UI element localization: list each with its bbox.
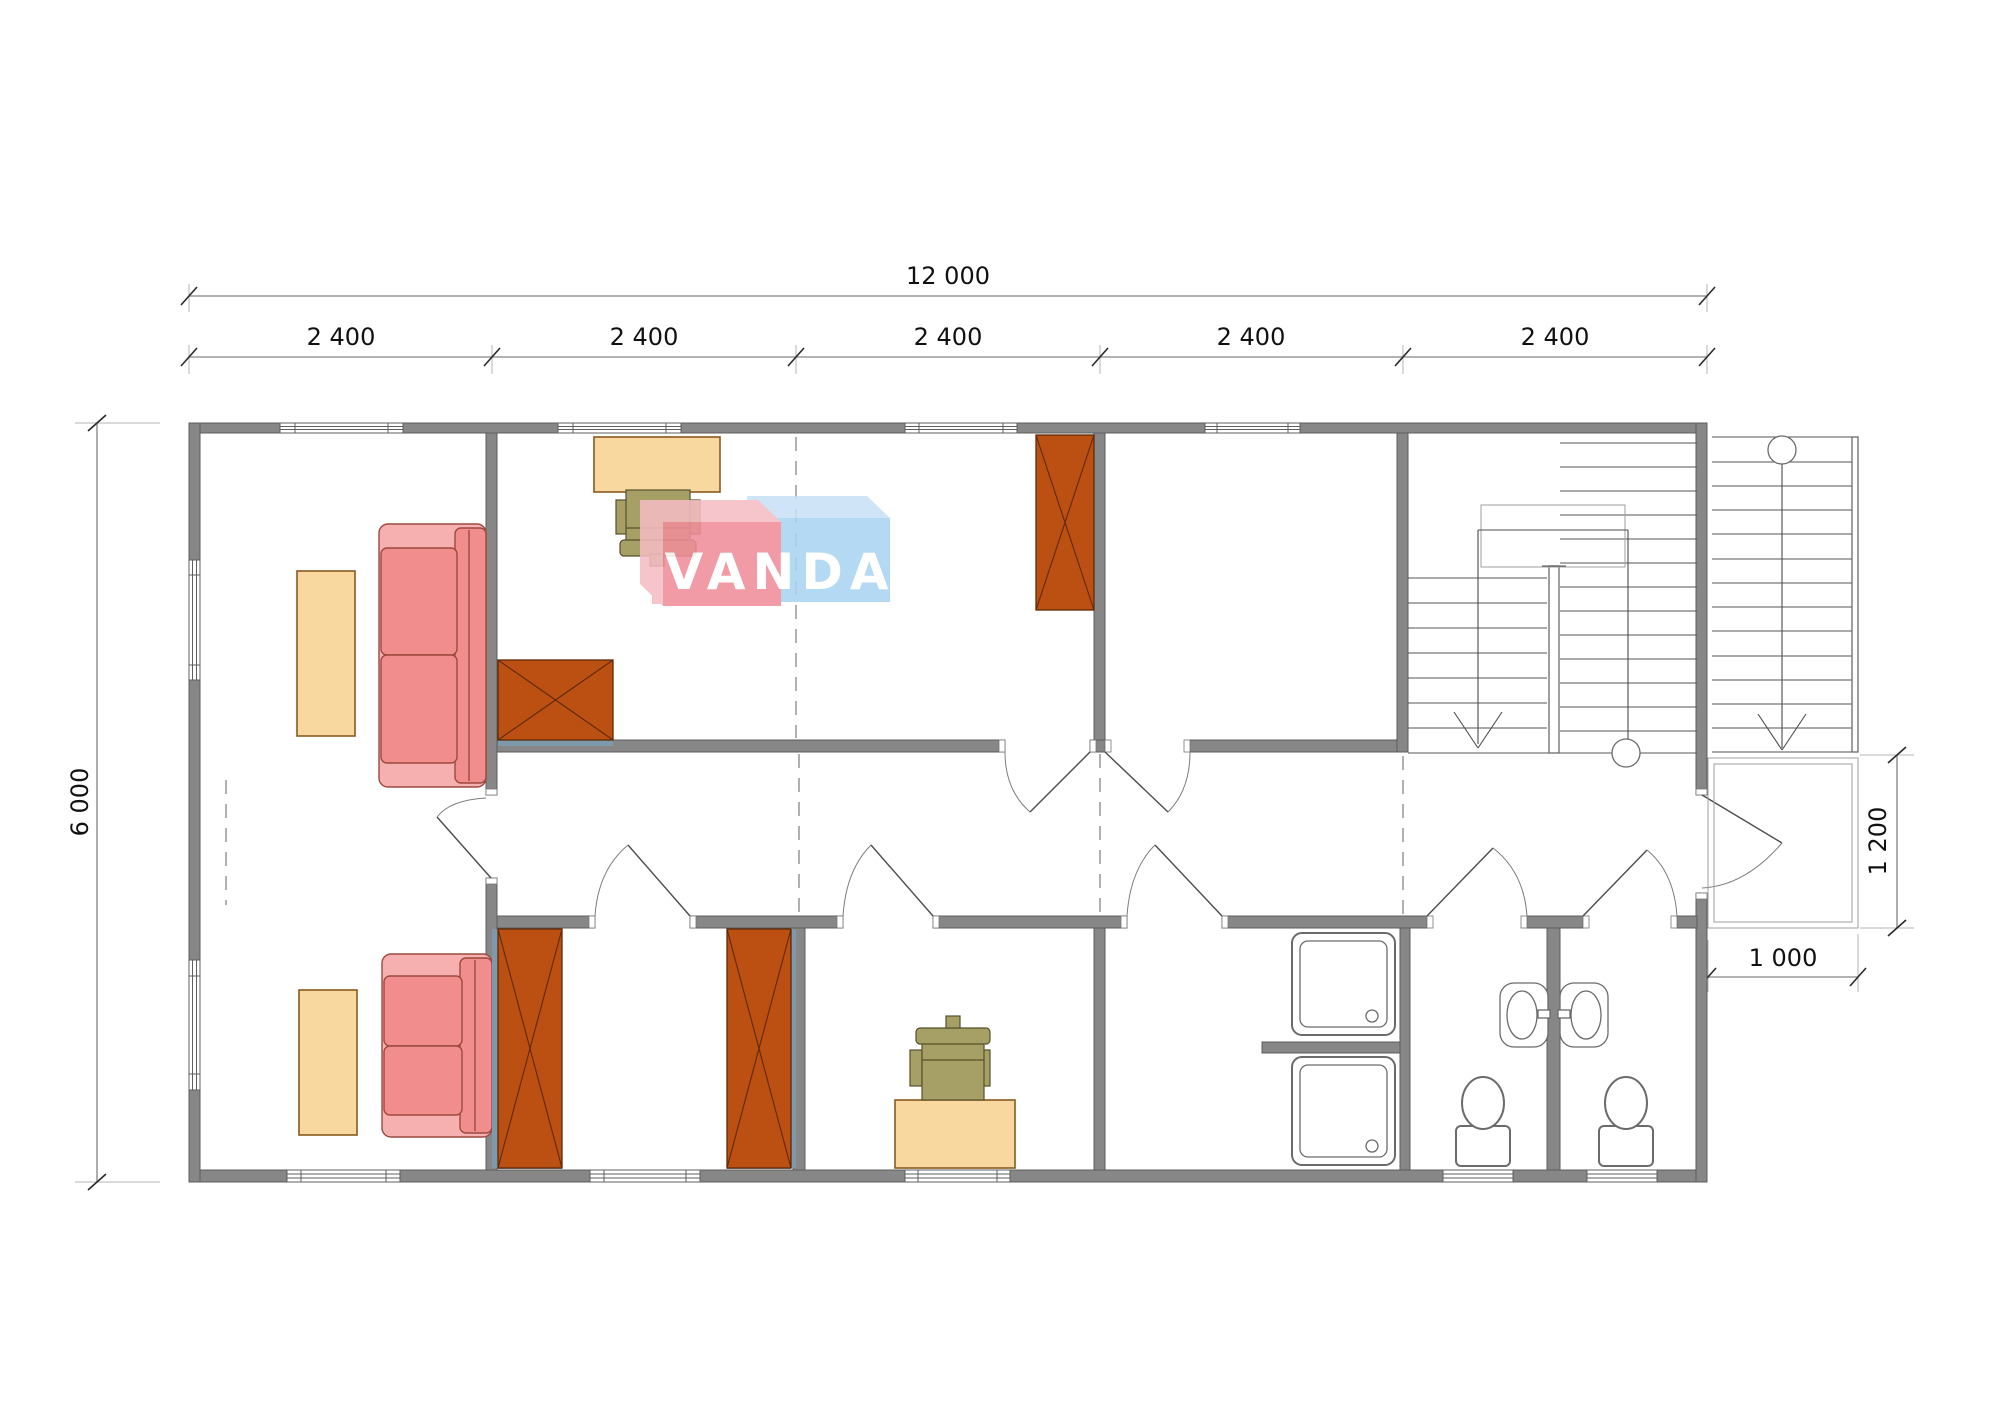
wall-corridor-bottom-f [1677,916,1697,928]
door-swing-icon [595,845,690,916]
dim-label-bay-5: 2 400 [1521,323,1590,351]
wall-shower-stub [1262,1042,1400,1053]
wardrobe-icon [727,929,796,1169]
sink-icon [1500,983,1550,1047]
dim-label-bay-1: 2 400 [307,323,376,351]
door-jamb-caps [486,740,1707,928]
external-stair-rail [1852,437,1858,752]
stair-landing-outline [1481,505,1625,567]
window-icon [558,423,681,433]
wall-corridor-bottom-a [497,916,595,928]
wall-corridor-bottom-b [690,916,843,928]
wall-stairroom [1397,433,1408,752]
wardrobe-icon [492,929,562,1169]
window-icon [280,423,403,433]
sofa-icon [379,524,486,787]
toilet-icon [1456,1077,1510,1166]
dim-label-total-depth: 6 000 [66,768,94,837]
wall-livingroom-upper [486,433,497,795]
porch-platform [1708,758,1858,928]
window-icon [189,560,200,680]
window-icon [1205,423,1300,433]
dim-label-bay-2: 2 400 [610,323,679,351]
dimension-bays: 2 400 2 400 2 400 2 400 2 400 [181,323,1715,374]
wardrobe-icon [498,660,613,746]
door-swing-icon [437,798,491,878]
drain-icon [1366,1140,1378,1152]
internal-staircase [1408,443,1697,767]
faucet-icon [1538,1010,1550,1018]
wall-corridor-bottom-c [933,916,1127,928]
wall-right-lower [1696,893,1707,1182]
desk-icon [895,1100,1015,1168]
door-swing-icon [1005,752,1090,812]
dimension-porch-front: 1 000 [1700,934,1866,992]
wall-wc-divider [1547,928,1560,1170]
faucet-icon [1558,1010,1570,1018]
floor-level-circle-icon [1612,739,1640,767]
wall-corridor-bottom-d [1222,916,1427,928]
coffee-table-icon [297,571,355,736]
dimension-total-width: 12 000 [181,262,1715,312]
dim-label-porch-side: 1 200 [1864,807,1892,876]
dim-label-bay-4: 2 400 [1217,323,1286,351]
sofa-icon [382,954,492,1137]
sink-icon [1558,983,1608,1047]
shower-tray-icon [1292,1057,1395,1165]
dim-label-porch-front: 1 000 [1749,944,1818,972]
door-swing-icon [843,845,933,916]
stair-handrail [1549,566,1559,753]
wall-corridor-bottom-e [1527,916,1583,928]
wardrobe-icon [1036,435,1095,610]
floor-level-circle-icon [1768,436,1796,464]
wall-corridor-top-b [1190,740,1408,752]
door-swing-icon [1127,845,1222,916]
door-swing-icon [1427,848,1527,916]
window-icon [287,1170,400,1182]
external-staircase [1708,436,1858,928]
drain-icon [1366,1010,1378,1022]
wall-right-upper [1696,423,1707,795]
watermark-red-top-face [640,500,781,522]
shower-tray-icon [1292,933,1395,1035]
door-swing-icon [1105,752,1190,812]
dimension-total-depth: 6 000 [66,415,160,1190]
window-icon [1443,1170,1513,1182]
wall-study-room3 [1094,433,1105,740]
toilet-icon [1599,1077,1653,1166]
office-chair-icon [910,1016,990,1100]
dim-label-total-width: 12 000 [906,262,990,290]
watermark: VANDA [640,496,896,606]
window-icon [1587,1170,1657,1182]
window-icon [189,960,200,1090]
watermark-text: VANDA [664,543,895,601]
dimension-porch-side: 1 200 [1860,747,1914,936]
window-icon [905,423,1017,433]
floor-plan-canvas: 12 000 2 400 2 400 2 400 2 400 2 400 6 [0,0,2000,1423]
coffee-table-icon [299,990,357,1135]
desk-icon [594,437,720,492]
doors [437,752,1782,916]
door-swing-icon [1583,850,1677,916]
window-icon [905,1170,1010,1182]
window-icon [590,1170,700,1182]
dim-label-bay-3: 2 400 [914,323,983,351]
wall-b2-shower [1094,928,1105,1170]
floor-plan-page: 12 000 2 400 2 400 2 400 2 400 2 400 6 [0,0,2000,1423]
wall-shower-wc [1400,928,1410,1170]
